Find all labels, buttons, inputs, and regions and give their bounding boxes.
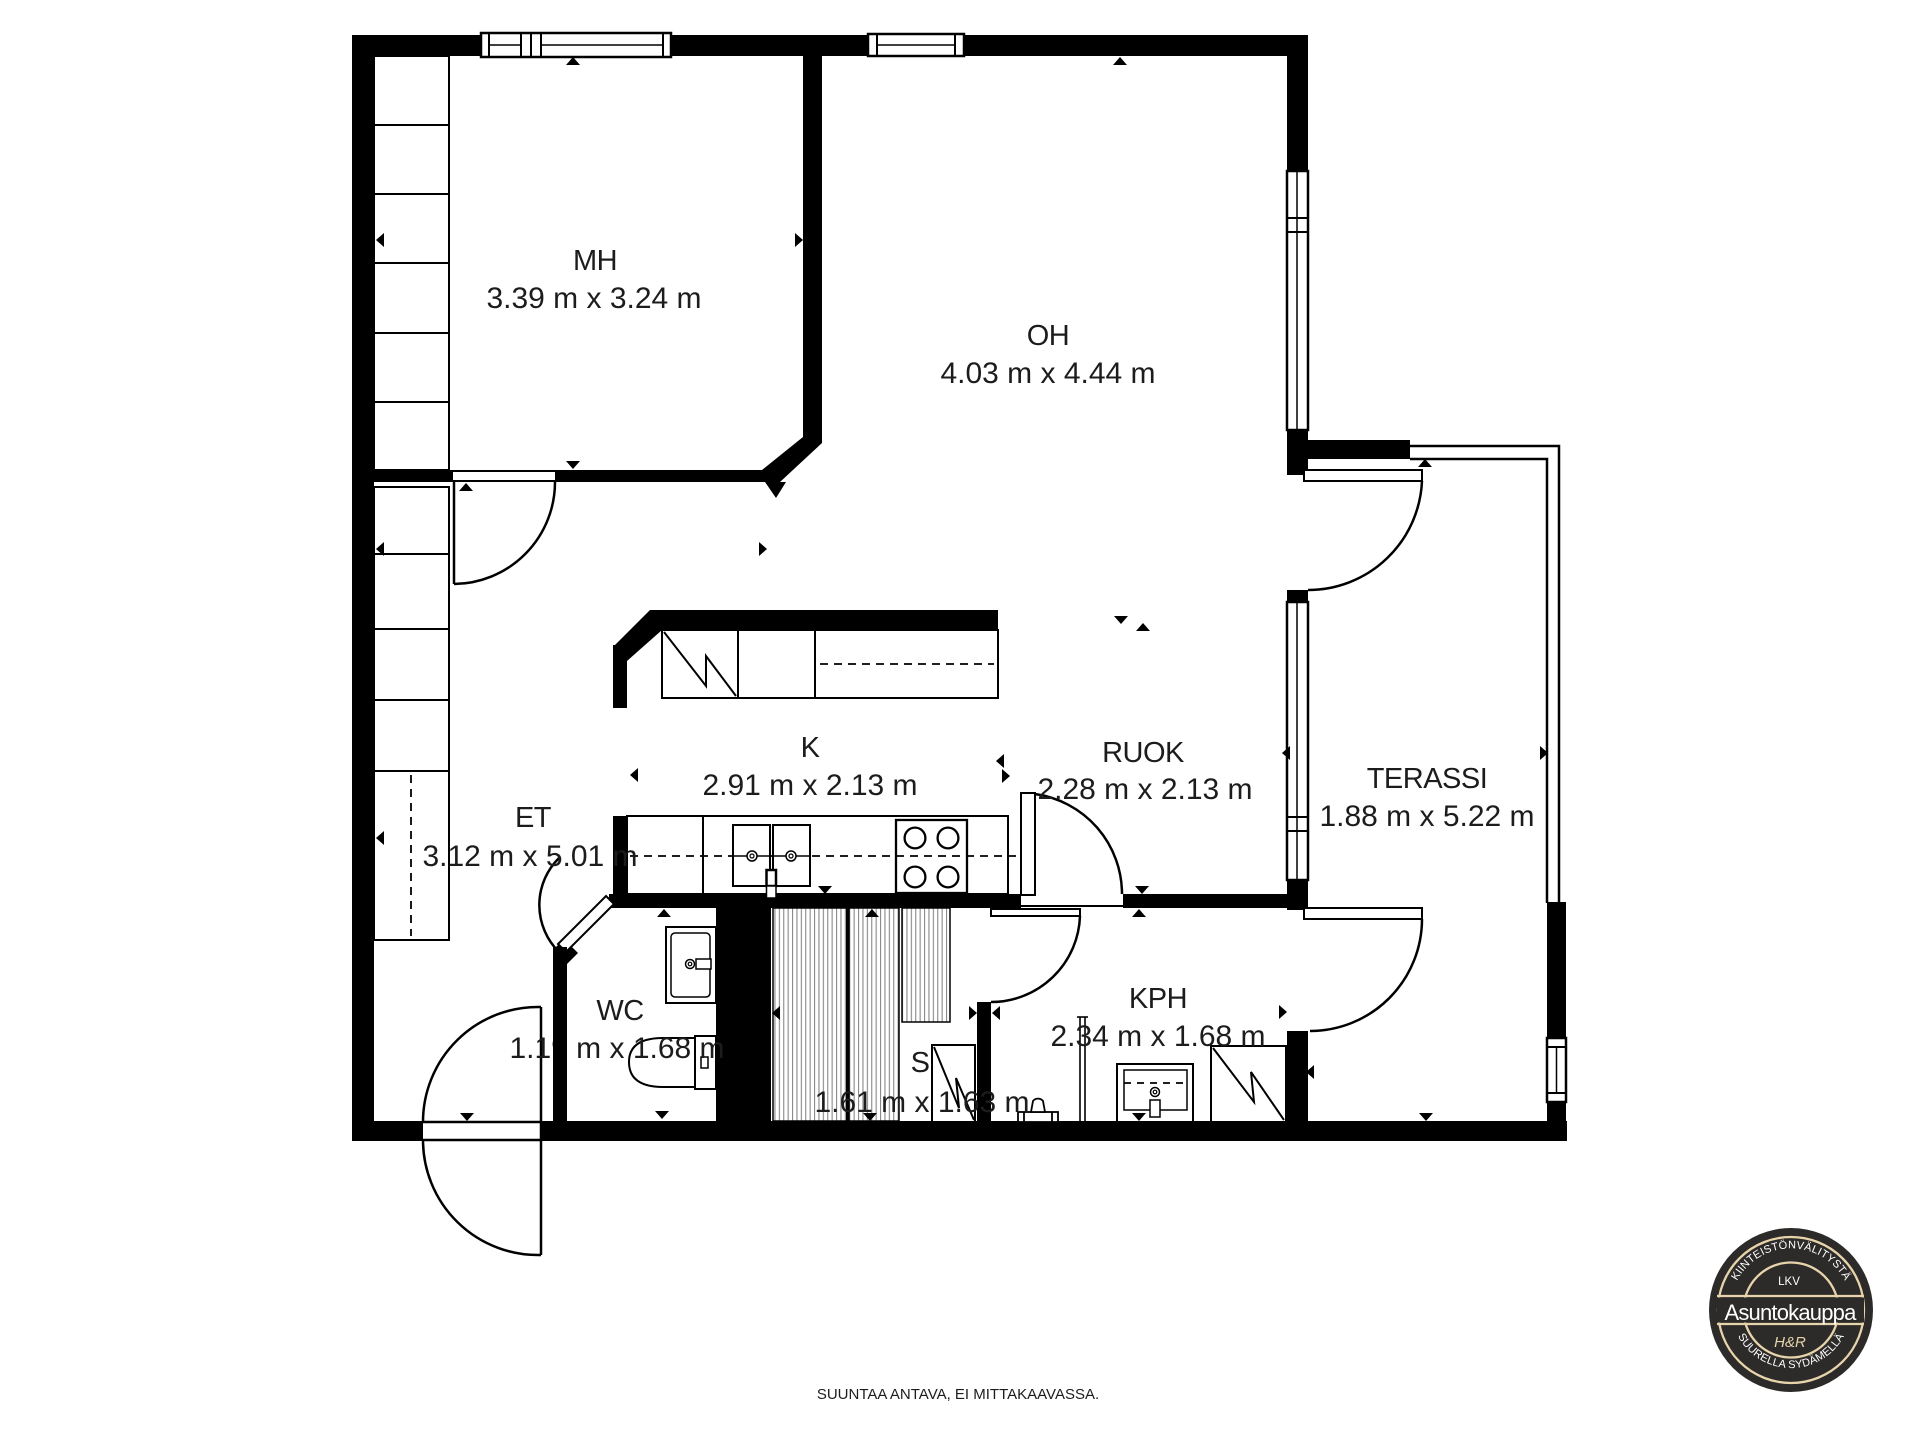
svg-text:ET: ET bbox=[515, 802, 552, 834]
svg-text:1.61 m x 1.63 m: 1.61 m x 1.63 m bbox=[814, 1086, 1029, 1119]
svg-text:RUOK: RUOK bbox=[1102, 737, 1185, 769]
svg-text:3.39 m x 3.24 m: 3.39 m x 3.24 m bbox=[486, 282, 701, 315]
svg-text:TERASSI: TERASSI bbox=[1367, 763, 1488, 795]
svg-text:OH: OH bbox=[1027, 320, 1070, 352]
svg-text:SUUNTAA ANTAVA, EI MITTAKAAVAS: SUUNTAA ANTAVA, EI MITTAKAAVASSA. bbox=[817, 1386, 1099, 1403]
svg-text:2.91 m x 2.13 m: 2.91 m x 2.13 m bbox=[702, 769, 917, 802]
svg-text:1.19 m x 1.68 m: 1.19 m x 1.68 m bbox=[509, 1032, 724, 1065]
svg-text:Asuntokauppa: Asuntokauppa bbox=[1724, 1300, 1857, 1325]
svg-text:K: K bbox=[801, 732, 821, 764]
svg-text:S: S bbox=[911, 1047, 930, 1079]
svg-text:4.03 m x 4.44 m: 4.03 m x 4.44 m bbox=[940, 357, 1155, 390]
svg-text:LKV: LKV bbox=[1778, 1276, 1800, 1288]
svg-text:3.12 m x 5.01 m: 3.12 m x 5.01 m bbox=[422, 840, 637, 873]
svg-text:H&R: H&R bbox=[1774, 1334, 1806, 1351]
svg-text:KPH: KPH bbox=[1129, 983, 1187, 1015]
svg-text:2.34 m x 1.68 m: 2.34 m x 1.68 m bbox=[1050, 1020, 1265, 1053]
svg-text:WC: WC bbox=[596, 995, 643, 1027]
svg-text:2.28 m x 2.13 m: 2.28 m x 2.13 m bbox=[1037, 773, 1252, 806]
svg-text:1.88 m x 5.22 m: 1.88 m x 5.22 m bbox=[1319, 800, 1534, 833]
svg-text:MH: MH bbox=[573, 245, 617, 277]
